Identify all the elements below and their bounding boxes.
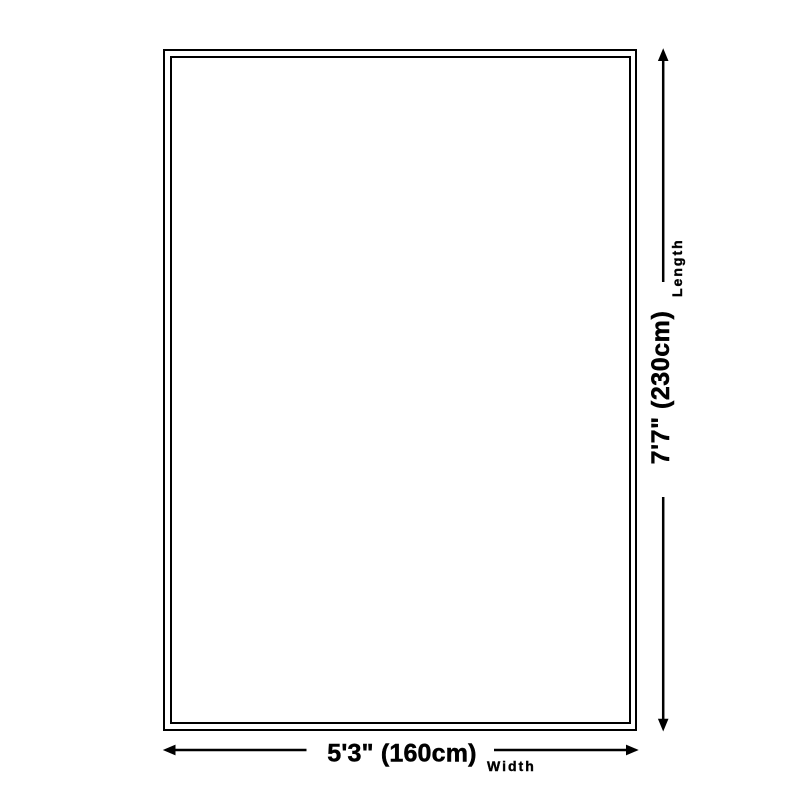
svg-text:Width: Width — [487, 758, 536, 774]
svg-text:7'7" (230cm): 7'7" (230cm) — [647, 311, 675, 465]
svg-text:5'3" (160cm): 5'3" (160cm) — [327, 740, 476, 768]
svg-text:Length: Length — [669, 238, 685, 297]
